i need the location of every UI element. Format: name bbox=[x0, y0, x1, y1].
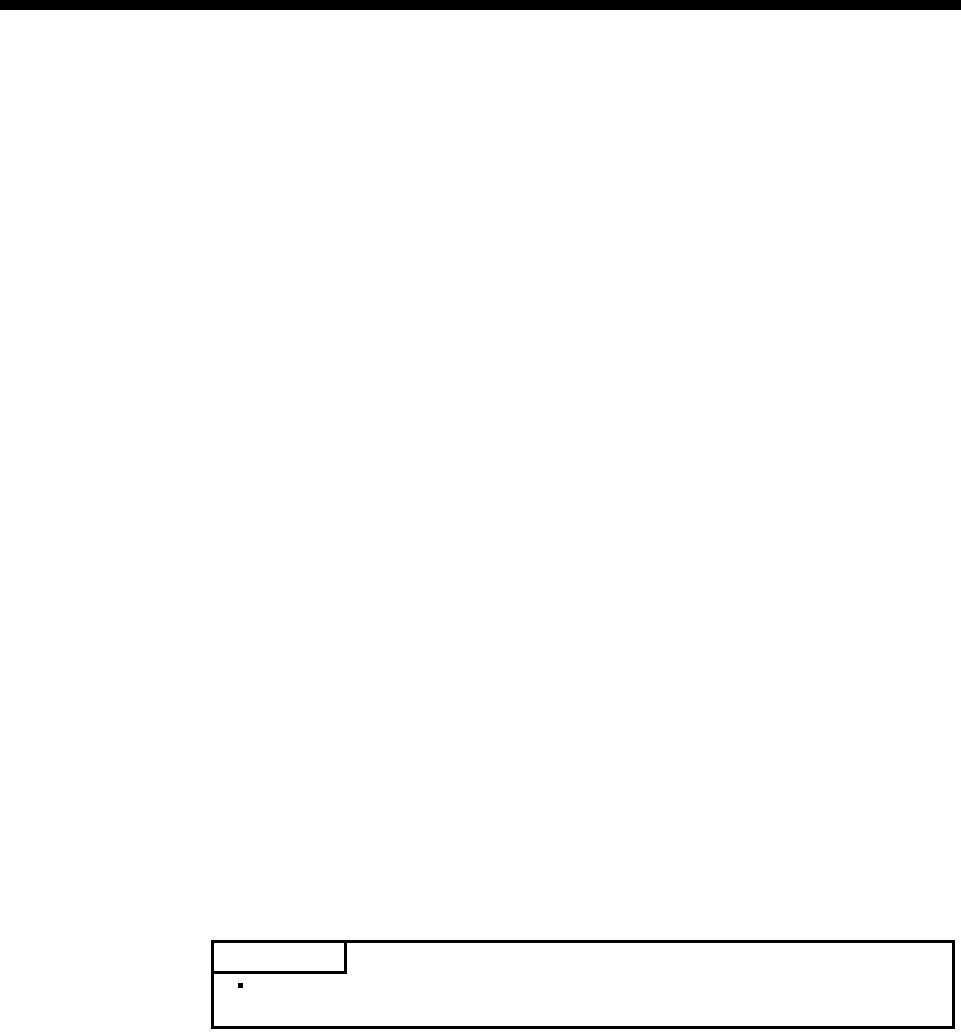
note-label-cell bbox=[214, 943, 347, 974]
document-page bbox=[0, 0, 961, 1033]
note-box bbox=[211, 940, 955, 1029]
top-black-bar bbox=[0, 0, 961, 10]
bullet-square-icon bbox=[238, 983, 243, 988]
